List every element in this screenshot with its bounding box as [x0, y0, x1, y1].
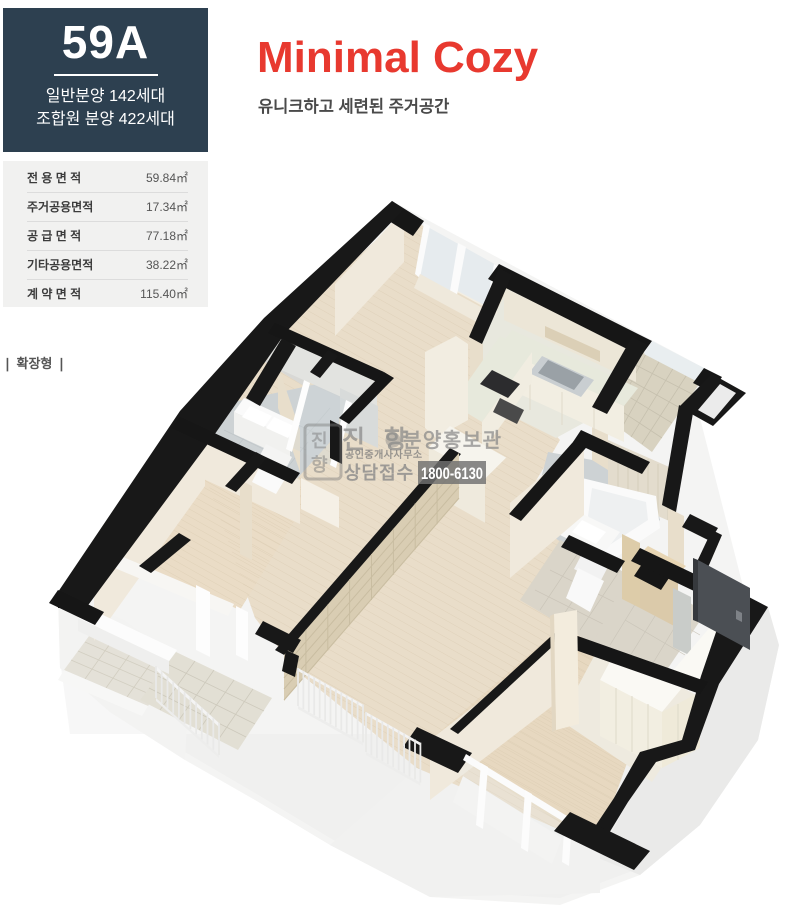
svg-text:상담접수: 상담접수: [344, 463, 414, 483]
svg-text:향: 향: [311, 455, 328, 475]
svg-text:진: 진: [311, 431, 328, 451]
svg-text:분양홍보관: 분양홍보관: [403, 428, 503, 452]
svg-text:1800-6130: 1800-6130: [421, 464, 483, 483]
svg-text:공인중개사사무소: 공인중개사사무소: [345, 448, 423, 461]
